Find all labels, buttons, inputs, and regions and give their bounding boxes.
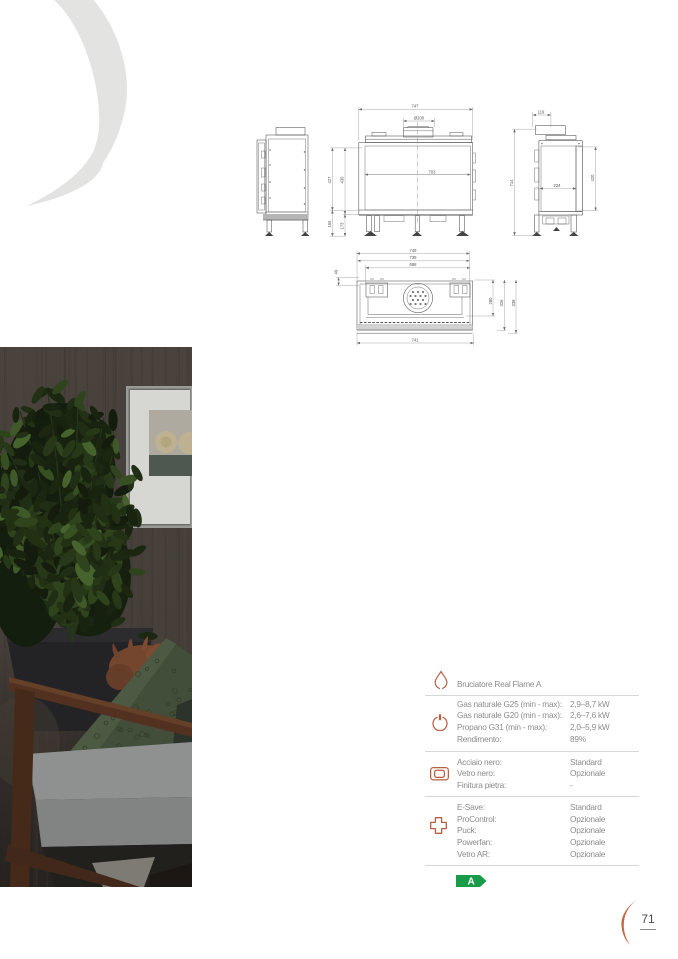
svg-text:688: 688: [410, 262, 418, 267]
svg-text:Ø200: Ø200: [414, 115, 425, 120]
svg-text:714: 714: [509, 179, 514, 187]
svg-text:A: A: [468, 877, 475, 887]
svg-text:427: 427: [327, 176, 332, 184]
svg-text:326: 326: [499, 299, 504, 307]
svg-text:749: 749: [410, 248, 418, 253]
svg-text:703: 703: [429, 169, 437, 174]
svg-text:173: 173: [340, 222, 345, 230]
svg-text:224: 224: [554, 183, 562, 188]
svg-text:280: 280: [488, 297, 493, 305]
svg-text:165: 165: [327, 220, 332, 228]
svg-text:430: 430: [340, 176, 345, 184]
svg-text:119: 119: [538, 110, 545, 115]
svg-text:739: 739: [410, 255, 418, 260]
svg-text:741: 741: [412, 337, 420, 342]
svg-text:420: 420: [590, 174, 595, 182]
svg-text:747: 747: [412, 104, 420, 109]
svg-text:49: 49: [333, 269, 338, 274]
svg-text:338: 338: [511, 299, 516, 307]
